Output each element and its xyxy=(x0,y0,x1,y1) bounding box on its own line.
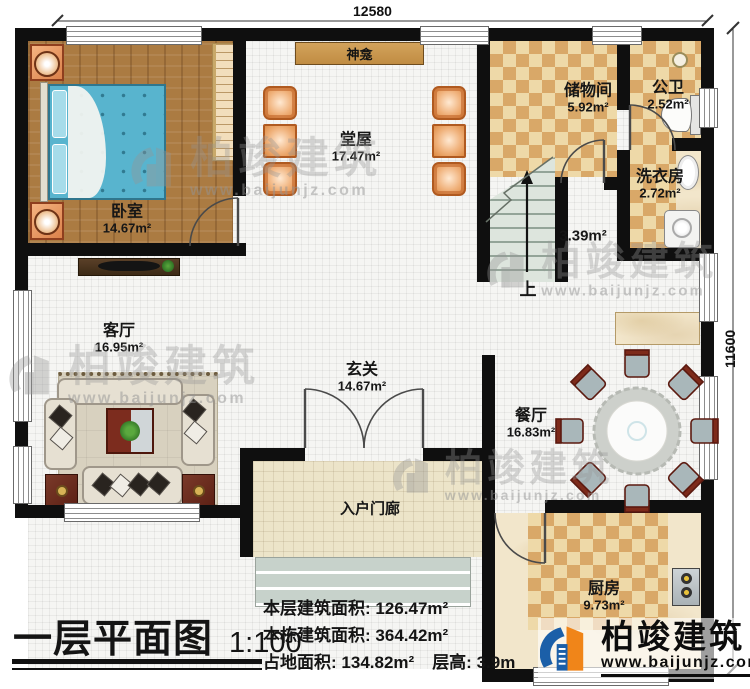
shrine-label: 神龛 xyxy=(346,44,372,63)
window xyxy=(13,446,32,504)
lamp-icon xyxy=(34,51,60,77)
label-stairs-up: 上 xyxy=(520,280,537,300)
burner-icon xyxy=(681,587,692,598)
hall-table xyxy=(432,124,466,158)
window xyxy=(66,26,202,45)
wall xyxy=(672,138,701,151)
floor-plan-page: 神龛 xyxy=(0,0,750,689)
stat-floor-area: 本层建筑面积: 126.47m² xyxy=(263,595,515,622)
room-label-storage: 储物间5.92m² xyxy=(564,82,612,115)
hall-chair xyxy=(263,86,297,120)
stove xyxy=(672,568,700,606)
washer-drum-icon xyxy=(672,218,692,238)
room-label-laundry: 洗衣房2.72m² xyxy=(636,168,684,201)
room-label-living: 客厅16.95m² xyxy=(95,322,143,355)
wall xyxy=(477,28,490,282)
hall-chair xyxy=(432,162,466,196)
fixture-icon xyxy=(672,52,688,68)
window xyxy=(699,88,718,128)
window xyxy=(420,26,489,45)
plan-title-text: 一层平面图 xyxy=(13,608,213,664)
lamp-icon xyxy=(34,209,60,235)
title-underline xyxy=(12,659,262,670)
shrine: 神龛 xyxy=(295,42,424,65)
wall xyxy=(423,448,482,461)
brand-website: www.baijunjz.com xyxy=(601,653,750,677)
wall xyxy=(240,448,253,557)
dimension-right-value: 11600 xyxy=(722,330,738,368)
pillow xyxy=(52,144,67,194)
hall-chair xyxy=(432,86,466,120)
brand-block: 柏竣建筑 www.baijunjz.com xyxy=(538,618,750,679)
area-stats: 本层建筑面积: 126.47m² 本栋建筑面积: 364.42m² 占地面积: … xyxy=(263,595,515,677)
plan-title: 一层平面图 1:100 xyxy=(13,608,302,664)
window xyxy=(699,376,718,480)
room-label-dining: 餐厅16.83m² xyxy=(507,407,555,440)
room-label-kitchen: 厨房9.73m² xyxy=(583,580,624,613)
label-stairs-area: 3.39m² xyxy=(559,227,607,244)
dimension-top-value: 12580 xyxy=(353,3,392,19)
washing-machine xyxy=(664,210,700,248)
burner-icon xyxy=(681,573,692,584)
nightstand xyxy=(30,202,64,240)
hall-table xyxy=(263,124,297,158)
plant-icon xyxy=(120,421,140,441)
nightstand xyxy=(30,44,64,81)
medallion-icon xyxy=(193,485,205,497)
wall xyxy=(246,448,305,461)
stat-building-area: 本栋建筑面积: 364.42m² xyxy=(263,622,515,649)
room-label-hall: 堂屋17.47m² xyxy=(332,131,380,164)
room-label-bedroom: 卧室14.67m² xyxy=(103,203,151,236)
room-label-foyer: 玄关14.67m² xyxy=(338,361,386,394)
tv xyxy=(98,261,160,271)
room-label-bathroom: 公卫2.52m² xyxy=(647,79,688,112)
brand-name: 柏竣建筑 xyxy=(601,620,750,653)
window xyxy=(64,503,200,522)
window xyxy=(699,253,718,322)
medallion-icon xyxy=(56,485,68,497)
plant-icon xyxy=(162,260,174,272)
wall xyxy=(233,28,246,196)
pillow xyxy=(52,90,67,138)
wall xyxy=(545,500,701,513)
wall xyxy=(15,28,28,518)
wall xyxy=(482,355,495,513)
room-label-porch: 入户门廊 xyxy=(340,500,400,517)
wall xyxy=(15,243,246,256)
sideboard xyxy=(615,312,700,345)
stat-land-height: 占地面积: 134.82m²层高: 3.9m xyxy=(263,649,515,676)
bed-headboard xyxy=(40,82,48,202)
wall xyxy=(617,41,630,110)
window xyxy=(13,290,32,422)
wall xyxy=(617,248,701,261)
hall-chair xyxy=(263,162,297,196)
window xyxy=(592,26,642,45)
wall xyxy=(617,150,630,260)
brand-logo-icon xyxy=(540,622,595,674)
